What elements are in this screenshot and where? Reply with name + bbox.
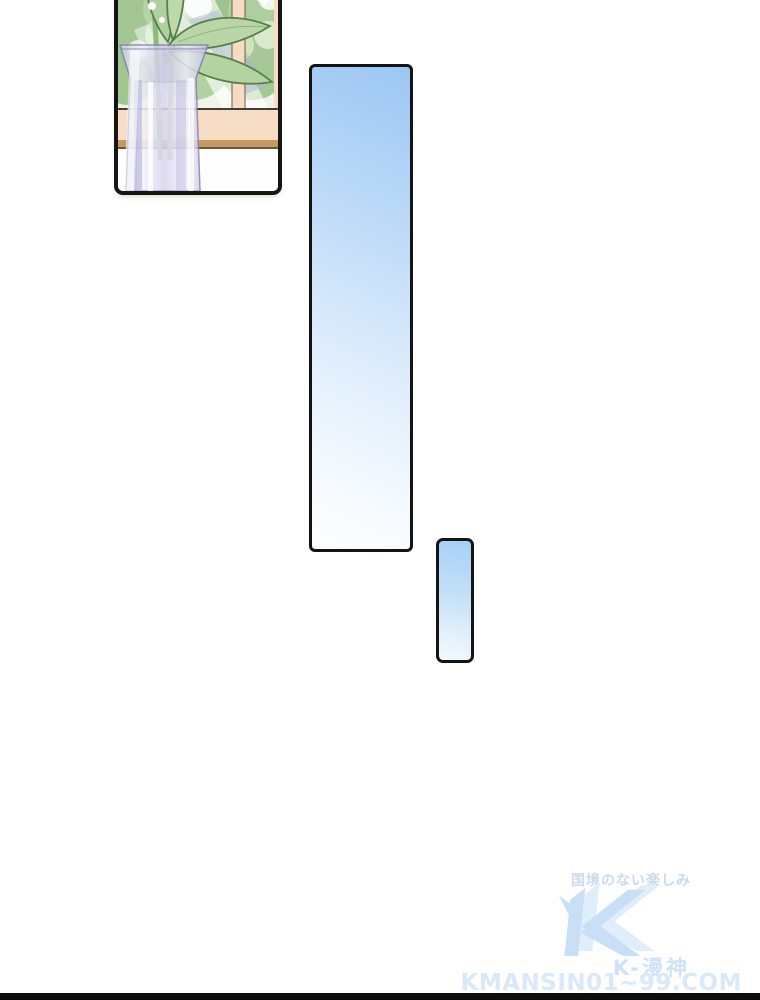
comic-page-canvas: 国境のない楽しみ K-漫神 KMANSIN01~99.COM — [0, 0, 760, 1000]
window-mullion — [232, 0, 245, 110]
plant-vase-panel — [114, 0, 282, 195]
next-panel-edge — [0, 993, 760, 1000]
window-frame-right — [274, 0, 278, 110]
vertical-panel-small — [436, 538, 474, 663]
logo-k-back — [579, 883, 662, 951]
k-manshin-logo-icon — [554, 880, 702, 958]
logo-k-front — [554, 888, 648, 956]
watermark-brand: K-漫神 — [613, 952, 690, 982]
plant-vase-illustration — [118, 0, 278, 191]
site-watermark: 国境のない楽しみ K-漫神 KMANSIN01~99.COM — [470, 858, 760, 1000]
vertical-panel-large — [309, 64, 413, 552]
glass-vase — [120, 45, 208, 191]
watermark-tagline: 国境のない楽しみ — [571, 870, 691, 890]
